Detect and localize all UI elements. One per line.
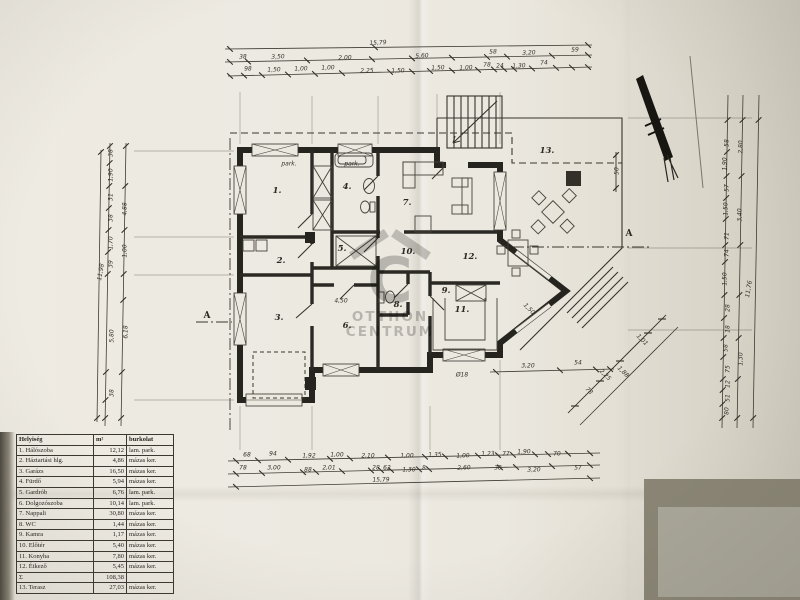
dimension-label: 1,00 xyxy=(294,65,308,72)
legend-header-cell: burkolat xyxy=(127,435,174,446)
table-cell: lam. park. xyxy=(127,498,174,509)
dimension-label: 18 xyxy=(725,325,732,333)
table-cell: 5,40 xyxy=(94,540,127,551)
dimension-label: 1,92 xyxy=(302,453,315,460)
table-cell: 9. Kamra xyxy=(17,530,94,541)
dimension-label: 28 xyxy=(372,465,380,472)
dimension-label: park. xyxy=(281,161,296,168)
dimension-label: 1,30 xyxy=(512,62,526,70)
table-cell: lam. park. xyxy=(127,487,174,498)
dimension-label: 88 xyxy=(304,467,312,474)
room-number-label: 6. xyxy=(343,321,352,331)
table-cell: 2. Háztartási hlg. xyxy=(17,456,94,467)
table-cell: 8. WC xyxy=(17,519,94,530)
table-cell: 12,12 xyxy=(94,445,127,456)
dimension-label: Ø18 xyxy=(456,372,468,379)
dimension-label: 1,00 xyxy=(456,452,470,459)
dimension-label: 6,18 xyxy=(123,325,130,338)
dimension-label: 1,70 xyxy=(108,236,115,249)
table-cell: Σ xyxy=(17,572,94,583)
dimension-label: 1,90 xyxy=(722,157,729,170)
table-row: 6. Dolgozószoba10,14lam. park. xyxy=(17,498,174,509)
dimension-label: 15,79 xyxy=(372,476,389,484)
room-number-label: 5. xyxy=(338,244,347,254)
dimension-label: 98 xyxy=(244,65,252,72)
dimension-label: 74 xyxy=(724,249,731,257)
table-cell: 6. Dolgozószoba xyxy=(17,498,94,509)
dimension-label: park. xyxy=(344,161,359,168)
dimension-label: 38 xyxy=(109,389,116,397)
table-row: 4. Fürdő5,94mázas ker. xyxy=(17,477,174,488)
table-cell: 30,80 xyxy=(94,509,127,520)
dimension-label: 38 xyxy=(108,214,115,222)
dimension-label: 1,90 xyxy=(108,168,115,181)
room-number-label: 7. xyxy=(403,198,412,208)
table-row: 11. Konyha7,80mázas ker. xyxy=(17,551,174,562)
dimension-label: 38 xyxy=(494,464,502,471)
table-cell: lam. park. xyxy=(127,445,174,456)
legend-table-body: 1. Hálószoba12,12lam. park.2. Háztartási… xyxy=(17,445,174,593)
table-cell: mázas ker. xyxy=(127,530,174,541)
dimension-label: 80 xyxy=(724,407,731,415)
dimension-label: 3,20 xyxy=(522,49,536,57)
dimension-label: 58 xyxy=(724,139,731,147)
table-cell: mázas ker. xyxy=(127,551,174,562)
table-row: 2. Háztartási hlg.4,86mázas ker. xyxy=(17,456,174,467)
table-row: 5. Gardrób6,76lam. park. xyxy=(17,487,174,498)
table-cell: 7,80 xyxy=(94,551,127,562)
table-cell: 5. Gardrób xyxy=(17,487,94,498)
dimension-label: 2,10 xyxy=(361,453,374,460)
table-row: 13. Terasz27,03mázas ker. xyxy=(17,583,174,594)
table-cell: 13. Terasz xyxy=(17,583,94,594)
dimension-label: 1,50 xyxy=(391,67,405,74)
table-row: Σ108,38 xyxy=(17,572,174,583)
table-cell: 3. Garázs xyxy=(17,466,94,477)
table-row: 8. WC1,44mázas ker. xyxy=(17,519,174,530)
table-cell: mázas ker. xyxy=(127,562,174,573)
dimension-label: 2,60 xyxy=(457,464,471,471)
room-number-label: 1. xyxy=(273,186,282,196)
dimension-label: 2,01 xyxy=(322,465,335,472)
dimension-label: 58 xyxy=(489,48,497,55)
dimension-label: 74 xyxy=(540,59,548,66)
dimension-label: 3,20 xyxy=(521,363,534,370)
table-row: 12. Étkező5,45mázas ker. xyxy=(17,562,174,573)
table-cell xyxy=(127,572,174,583)
dimension-label: 70 xyxy=(553,450,561,457)
table-cell: 27,03 xyxy=(94,583,127,594)
dimension-label: 59 xyxy=(571,46,579,53)
table-cell: 4,86 xyxy=(94,456,127,467)
scanned-floorplan-page: C OTTHON CENTRUM 15,79383,502,005,60583,… xyxy=(0,0,800,600)
dimension-label: 75 xyxy=(725,365,732,373)
dimension-label: 2,00 xyxy=(338,54,352,61)
table-row: 9. Kamra1,17mázas ker. xyxy=(17,530,174,541)
chimney-symbol xyxy=(305,232,315,243)
dimension-label: 31 xyxy=(108,193,115,201)
dimension-label: 39 xyxy=(108,260,115,268)
dimension-label: 1,30 xyxy=(738,352,745,365)
table-cell: 11. Konyha xyxy=(17,551,94,562)
table-row: 10. Előtér5,40mázas ker. xyxy=(17,540,174,551)
scan-edge-shadow xyxy=(0,432,15,600)
table-row: 1. Hálószoba12,12lam. park. xyxy=(17,445,174,456)
dimension-label: 3,20 xyxy=(527,466,541,473)
dimension-label: 2,80 xyxy=(738,140,745,153)
dimension-label: 5,60 xyxy=(415,52,429,60)
blank-gray-box xyxy=(658,507,800,597)
room-number-label: 11. xyxy=(455,305,470,315)
dimension-label: 38 xyxy=(239,53,247,60)
table-cell: mázas ker. xyxy=(127,519,174,530)
legend-header-cell: Helyiség xyxy=(17,435,94,446)
table-cell: mázas ker. xyxy=(127,540,174,551)
legend-header-row: Helyiségm²burkolat xyxy=(17,435,174,446)
dimension-label: 3,40 xyxy=(737,208,744,221)
table-cell: 108,38 xyxy=(94,572,127,583)
room-number-label: 13. xyxy=(540,146,555,156)
table-cell: 1,17 xyxy=(94,530,127,541)
table-cell: mázas ker. xyxy=(127,509,174,520)
dimension-label: 78 xyxy=(483,61,491,68)
table-cell: 1. Hálószoba xyxy=(17,445,94,456)
room-number-label: 3. xyxy=(275,313,284,323)
table-cell: mázas ker. xyxy=(127,583,174,594)
table-row: 7. Nappali30,80mázas ker. xyxy=(17,509,174,520)
dimension-label: 94 xyxy=(269,451,277,458)
dimension-label: 5,80 xyxy=(109,329,116,342)
room-number-label: 2. xyxy=(277,256,286,266)
dimension-label: 1,50 xyxy=(267,66,281,73)
dimension-label: 1,00 xyxy=(321,64,335,71)
dimension-label: 1,35 xyxy=(428,451,442,458)
chimney-symbol xyxy=(305,377,316,390)
table-cell: mázas ker. xyxy=(127,477,174,488)
dimension-label: 3,00 xyxy=(267,465,280,472)
dimension-label: 58 xyxy=(723,344,730,352)
table-cell: 12. Étkező xyxy=(17,562,94,573)
dimension-label: 4,88 xyxy=(122,202,129,215)
dimension-label: 1,90 xyxy=(517,448,531,455)
dimension-label: 50 xyxy=(614,167,621,175)
dimension-label: 8 xyxy=(422,464,426,471)
dimension-label: 1,50 xyxy=(723,202,730,215)
dimension-label: 15,79 xyxy=(369,39,387,47)
room-number-label: 10. xyxy=(401,247,416,257)
dimension-label: 1,50 xyxy=(722,272,729,285)
room-number-label: 4. xyxy=(343,182,352,192)
dimension-label: 68 xyxy=(243,452,251,459)
dimension-label: 1,30 xyxy=(402,467,415,474)
dimension-label: 77 xyxy=(502,450,510,457)
dimension-label: 2,25 xyxy=(360,67,374,74)
grill-symbol xyxy=(566,171,581,186)
pen-object xyxy=(636,56,703,188)
table-cell: 7. Nappali xyxy=(17,509,94,520)
dimension-label: 38 xyxy=(108,149,115,157)
dimension-label: 4,50 xyxy=(334,298,347,305)
room-legend-table: Helyiségm²burkolat 1. Hálószoba12,12lam.… xyxy=(16,434,174,594)
room-number-label: 12. xyxy=(463,252,478,262)
section-marker-label: A xyxy=(204,311,211,321)
dimension-label: 51 xyxy=(725,394,732,402)
table-cell: mázas ker. xyxy=(127,466,174,477)
table-cell: 1,44 xyxy=(94,519,127,530)
dimension-label: 1,23 xyxy=(481,450,495,457)
entrance-stairs xyxy=(447,96,502,148)
table-cell: 10. Előtér xyxy=(17,540,94,551)
dimension-label: 1,00 xyxy=(400,453,413,460)
table-cell: 16,50 xyxy=(94,466,127,477)
dimension-label: 62 xyxy=(383,465,391,472)
room-number-label: 9. xyxy=(442,286,451,296)
dimension-label: 71 xyxy=(724,232,731,240)
legend-header-cell: m² xyxy=(94,435,127,446)
room-number-label: 8. xyxy=(394,300,403,310)
table-cell: 10,14 xyxy=(94,498,127,509)
dimension-label: 78 xyxy=(239,465,247,472)
dimension-label: 28 xyxy=(725,304,732,312)
dimension-label: 24 xyxy=(496,62,504,69)
car-space-dashed xyxy=(253,352,305,398)
dimension-label: 1,00 xyxy=(330,452,343,459)
table-row: 3. Garázs16,50mázas ker. xyxy=(17,466,174,477)
table-cell: 6,76 xyxy=(94,487,127,498)
table-cell: mázas ker. xyxy=(127,456,174,467)
table-cell: 4. Fürdő xyxy=(17,477,94,488)
dimension-label: 3,50 xyxy=(271,53,285,60)
dimension-label: 1,00 xyxy=(459,64,473,72)
table-cell: 5,45 xyxy=(94,562,127,573)
dimension-label: 54 xyxy=(574,360,582,367)
section-marker-label: A xyxy=(626,229,633,239)
dimension-label: 12 xyxy=(725,380,732,388)
table-cell: 5,94 xyxy=(94,477,127,488)
dimension-label: 1,00 xyxy=(122,244,129,257)
dimension-label: 1,50 xyxy=(431,64,445,72)
dimension-label: 57 xyxy=(574,464,582,471)
dimension-label: 57 xyxy=(724,184,731,192)
